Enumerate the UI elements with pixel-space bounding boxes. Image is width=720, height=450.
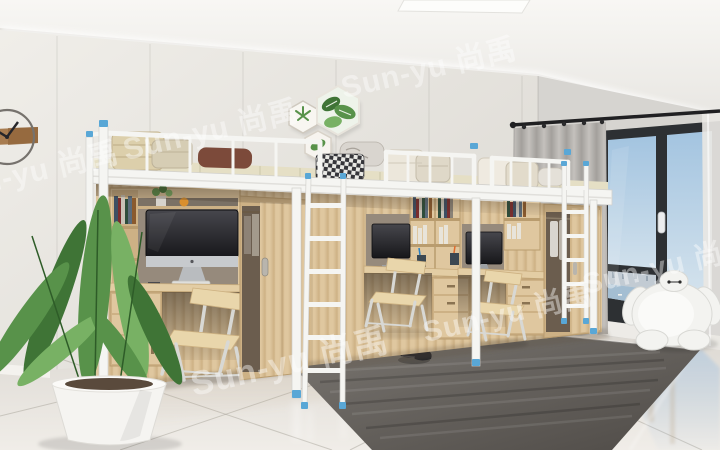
- dorm-room-photo: Sun-yu 尚禹 Sun-yu 尚禹 Sun-yu 尚禹 Sun-yu 尚禹 …: [0, 0, 720, 450]
- post-mid-2: [472, 198, 480, 366]
- post-mid-1: [292, 188, 301, 398]
- desk-station-2: [364, 192, 470, 339]
- ceiling-light-panel: [398, 0, 530, 13]
- door-handle-1: [262, 258, 268, 276]
- plant-pot: [52, 376, 166, 445]
- post-right: [590, 200, 597, 334]
- hanging-clothes-1: [242, 212, 262, 256]
- pillow-brown: [198, 147, 253, 169]
- room-illustration: [0, 0, 720, 450]
- door-handle: [658, 212, 665, 233]
- door-handle-3: [573, 262, 577, 275]
